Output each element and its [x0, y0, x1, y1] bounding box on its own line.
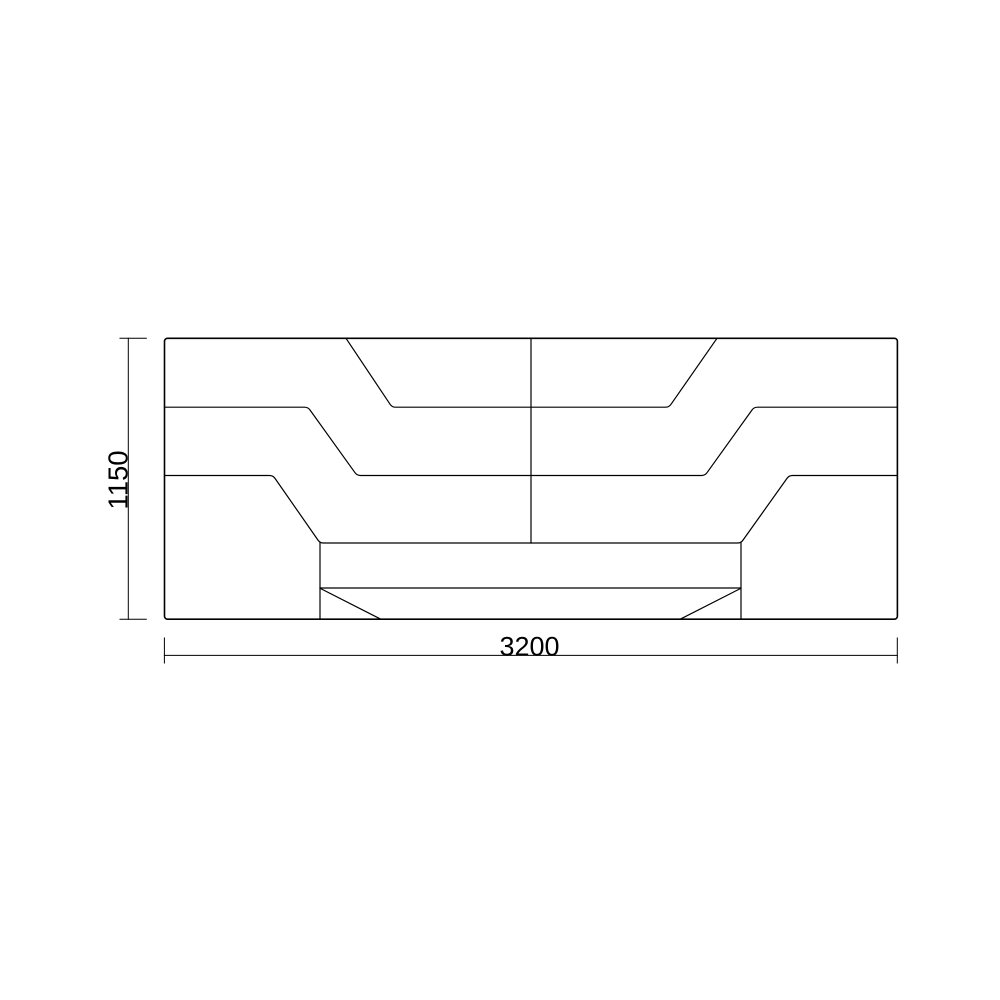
svg-text:1150: 1150 [102, 450, 133, 509]
svg-text:3200: 3200 [499, 632, 559, 662]
